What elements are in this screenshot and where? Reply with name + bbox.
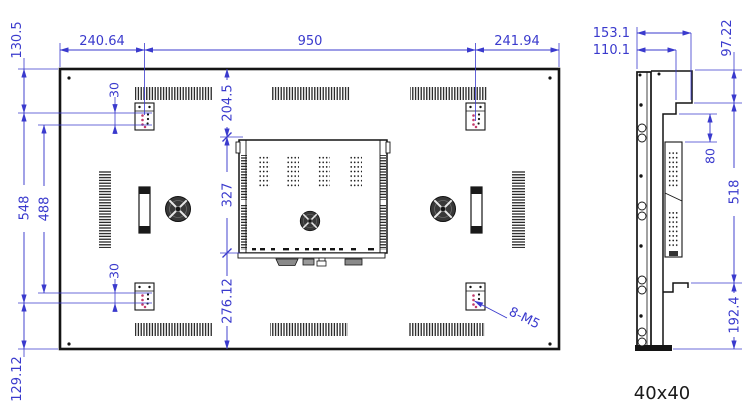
rear-view — [60, 69, 559, 349]
speaker-left — [166, 197, 191, 222]
technical-drawing-page: 240.64 950 241.94 130.5 548 488 129.12 3… — [0, 0, 750, 407]
side-bottom-hook — [663, 283, 688, 292]
dim-label-side-bottom: 192.4 — [728, 296, 743, 333]
dim-label-left-top: 130.5 — [10, 21, 25, 58]
side-electronics-box — [665, 142, 682, 257]
profile-size-label: 40x40 — [634, 383, 690, 404]
dim-label-center-bottom: 276.12 — [221, 278, 236, 324]
mount-bracket-bottom-left — [135, 283, 154, 310]
vga-connector — [276, 259, 298, 266]
dim-label-center-top: 204.5 — [221, 84, 236, 121]
dim-label-hole-gap-top: 30 — [107, 82, 122, 98]
dim-label-hole-gap-bottom: 30 — [107, 263, 122, 279]
dim-label-top-center: 950 — [298, 34, 323, 49]
vent-strips-top — [135, 87, 487, 100]
dim-label-depth-outer: 153.1 — [593, 26, 630, 41]
dim-label-top-left: 240.64 — [79, 34, 125, 49]
usb-connector — [317, 261, 326, 266]
dim-label-left-inner: 488 — [38, 197, 53, 222]
box-fan — [300, 211, 320, 231]
io-connector — [303, 259, 314, 265]
box-bottom-flange — [238, 253, 385, 258]
side-panel-front — [637, 72, 651, 349]
handle-left — [139, 187, 150, 233]
dim-label-side-hook: 80 — [703, 148, 718, 164]
box-tab-right — [386, 142, 390, 153]
dim-label-left-outer: 548 — [18, 196, 33, 221]
dim-label-depth-inner: 110.1 — [593, 43, 630, 58]
dim-label-side-top: 97.22 — [720, 19, 735, 56]
mount-bracket-bottom-right — [466, 283, 485, 310]
electronics-box — [236, 140, 390, 266]
power-connector — [345, 259, 362, 265]
dim-label-left-bottom: 129.12 — [10, 356, 25, 402]
dim-label-side-middle: 518 — [728, 180, 743, 205]
box-tab-left — [236, 142, 240, 153]
dim-label-center-box: 327 — [221, 183, 236, 208]
vent-strips-bottom — [135, 323, 485, 336]
handle-right — [471, 187, 482, 233]
technical-drawing: 240.64 950 241.94 130.5 548 488 129.12 3… — [0, 0, 750, 407]
dim-label-top-right: 241.94 — [494, 34, 540, 49]
speaker-right — [431, 197, 456, 222]
side-view — [635, 71, 692, 351]
box-connectors — [276, 258, 362, 266]
